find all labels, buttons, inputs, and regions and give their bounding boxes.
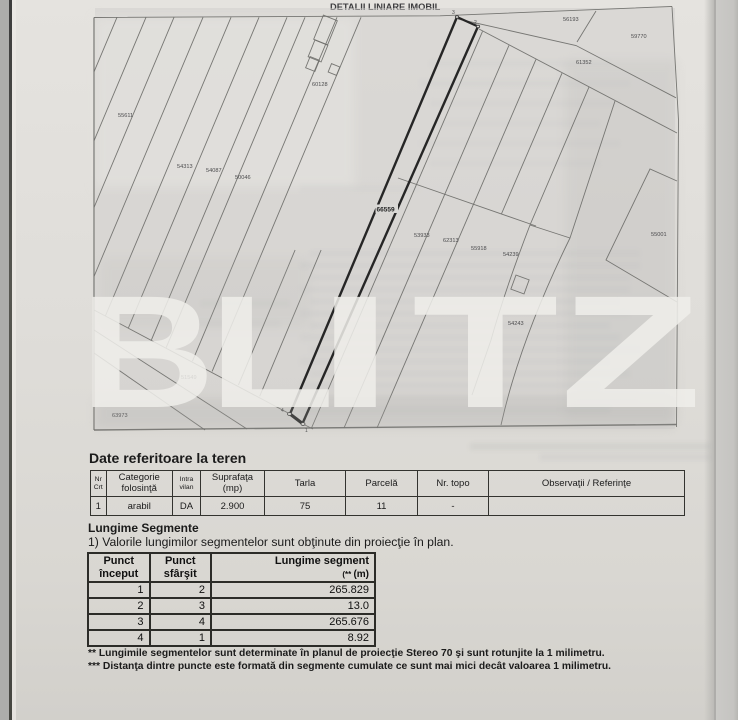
svg-text:T: T — [412, 263, 559, 442]
svg-text:59770: 59770 — [631, 34, 647, 40]
svg-text:66559: 66559 — [377, 207, 395, 214]
svg-text:55001: 55001 — [651, 232, 667, 238]
svg-text:55918: 55918 — [471, 246, 487, 252]
svg-text:56193: 56193 — [563, 17, 579, 23]
svg-text:Z: Z — [560, 263, 702, 441]
svg-text:I: I — [315, 263, 395, 442]
svg-text:60128: 60128 — [312, 82, 328, 88]
svg-text:53933: 53933 — [414, 233, 430, 239]
svg-text:62313: 62313 — [443, 238, 459, 244]
svg-text:2: 2 — [474, 20, 477, 26]
svg-text:50046: 50046 — [235, 175, 251, 181]
svg-text:54087: 54087 — [206, 168, 222, 174]
svg-text:55611: 55611 — [118, 113, 133, 119]
svg-text:54239: 54239 — [503, 252, 519, 258]
svg-text:3: 3 — [452, 10, 455, 16]
svg-text:B: B — [80, 262, 215, 441]
svg-text:54313: 54313 — [177, 164, 193, 170]
svg-text:61352: 61352 — [576, 60, 592, 66]
